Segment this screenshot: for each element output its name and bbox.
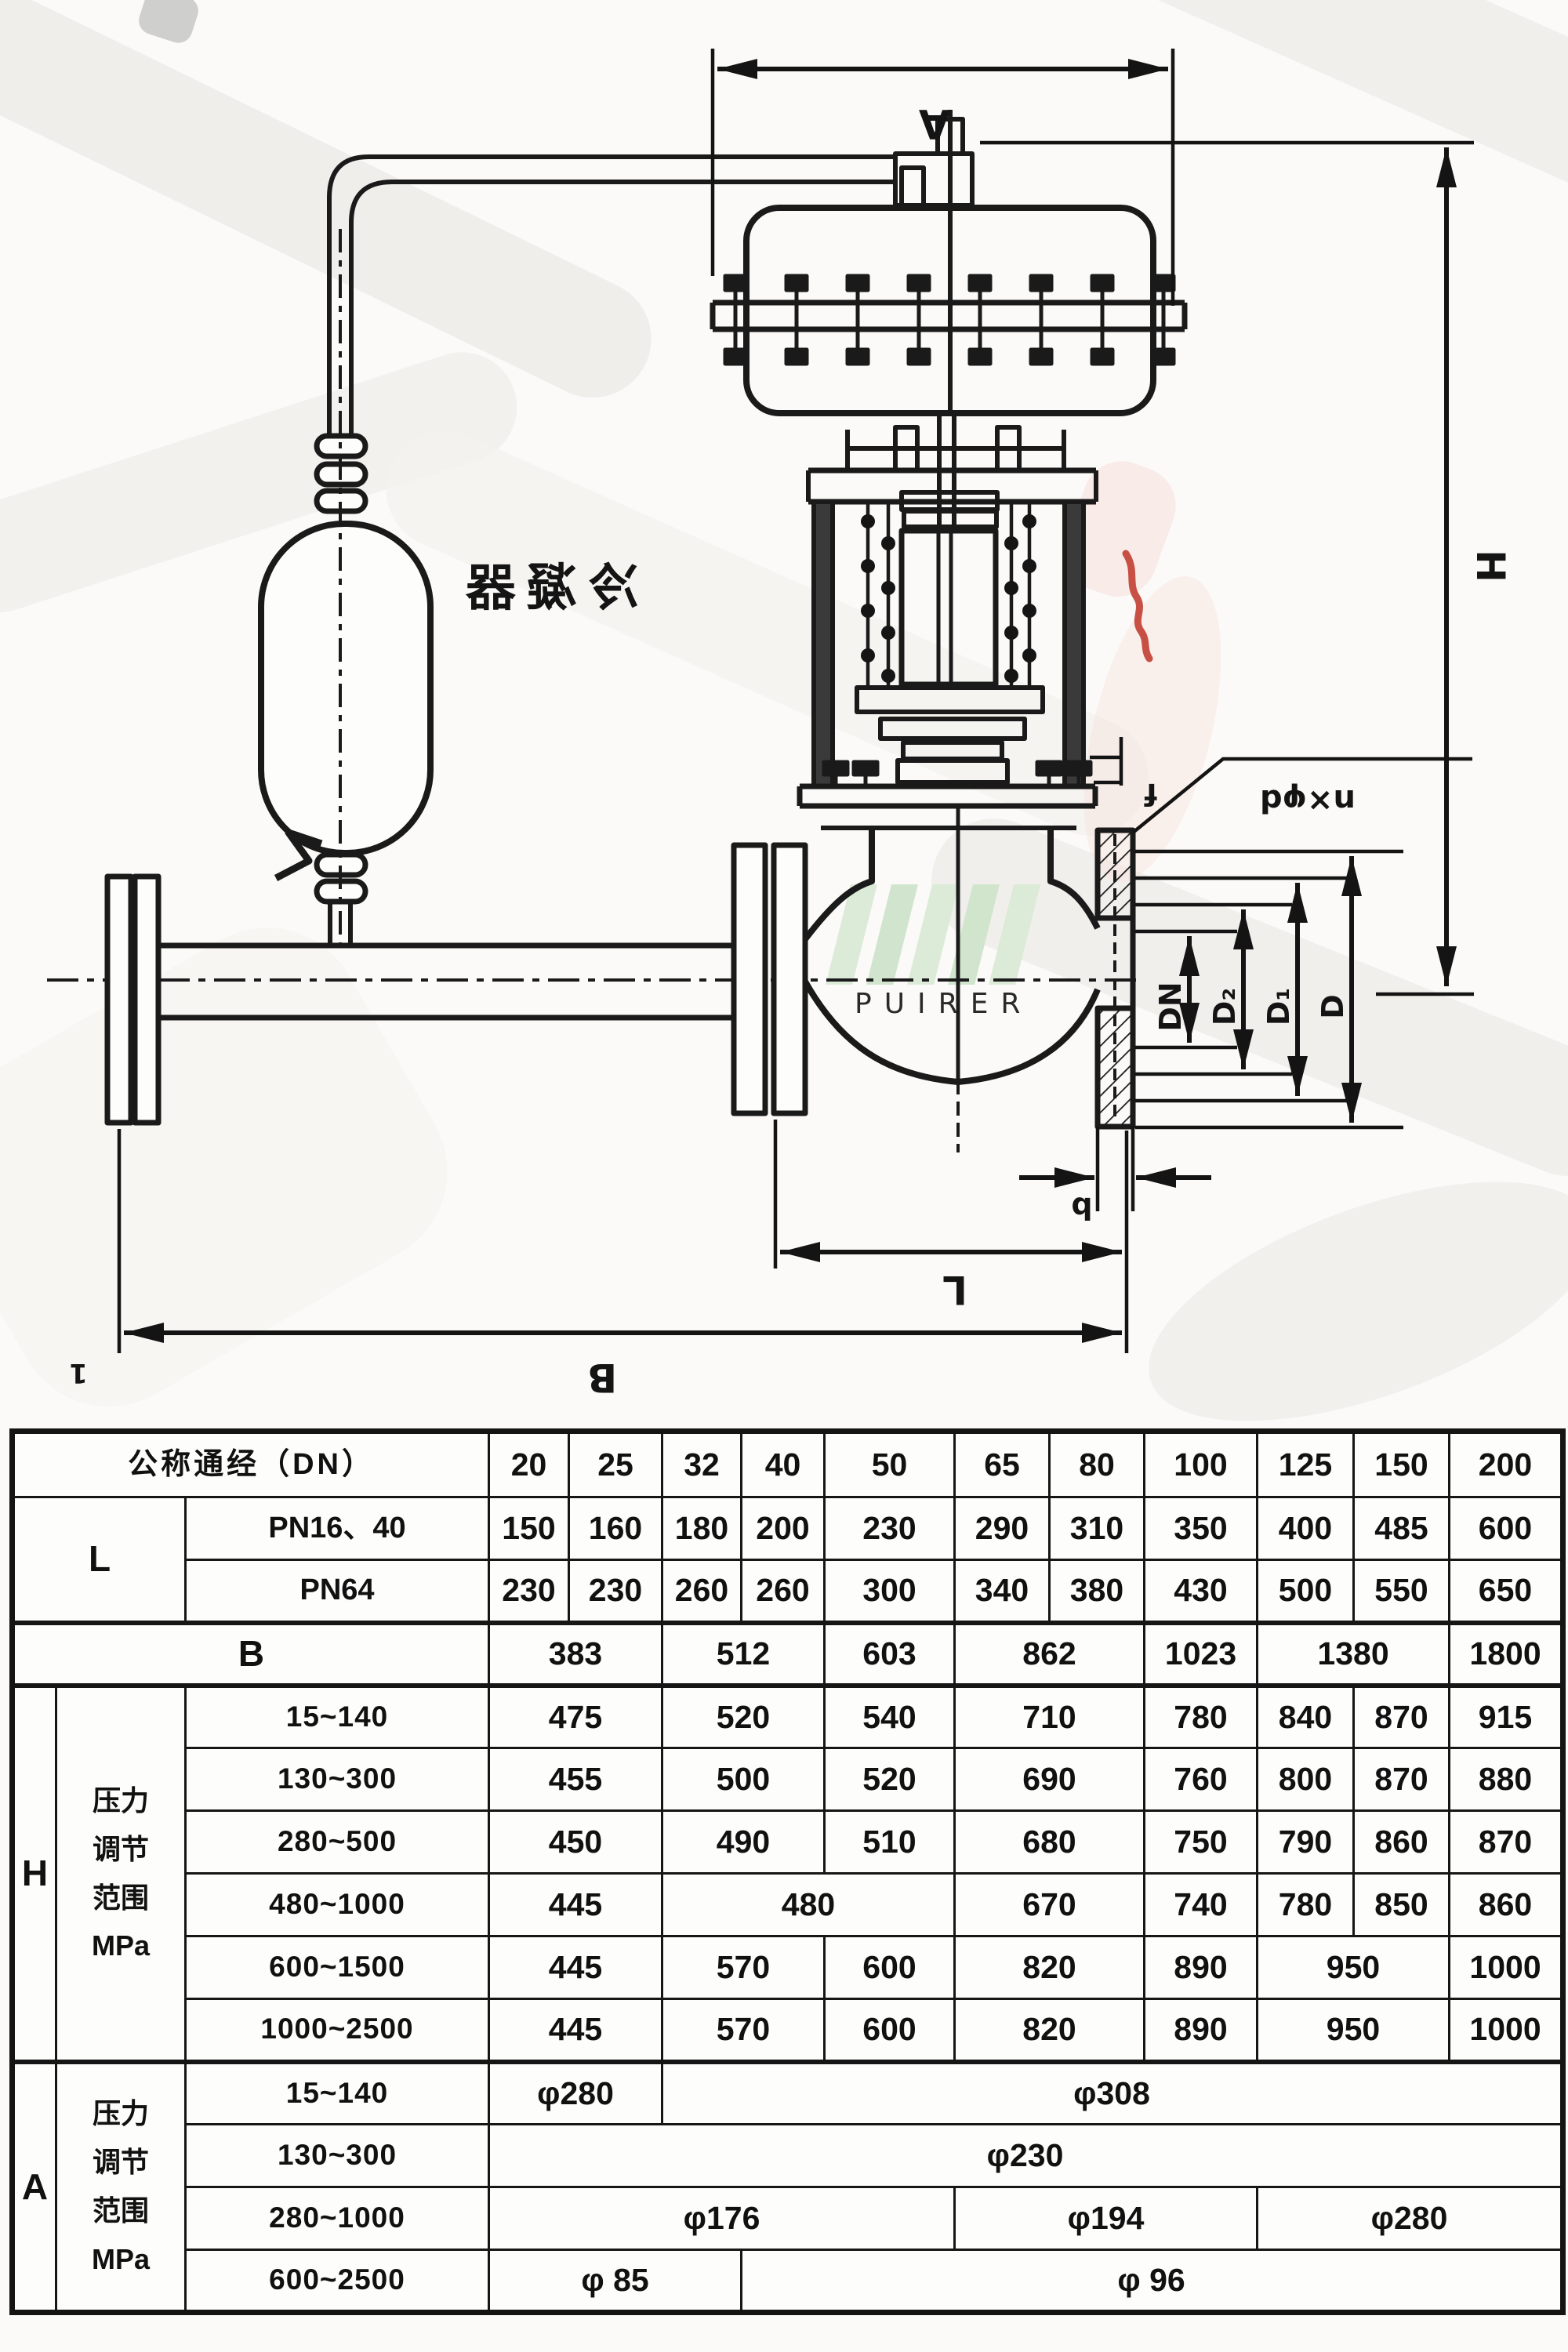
- label-D: D: [1316, 994, 1350, 1019]
- table-cell: 570: [662, 1999, 825, 2062]
- table-cell: 430: [1145, 1560, 1258, 1623]
- inlet-flange: [734, 845, 805, 1113]
- table-cell: 1380: [1258, 1623, 1450, 1686]
- table-cell: 280~500: [186, 1811, 489, 1874]
- table-cell: 480~1000: [186, 1874, 489, 1936]
- table-row: PN64230230260260300340380430500550650: [13, 1560, 1563, 1623]
- table-cell: 600: [825, 1936, 955, 1999]
- table-cell: 445: [489, 1874, 662, 1936]
- table-cell: 950: [1258, 1936, 1450, 1999]
- table-cell: 130~300: [186, 2125, 489, 2187]
- table-cell: 15~140: [186, 2062, 489, 2125]
- table-cell: 50: [825, 1432, 955, 1497]
- table-cell: 1000: [1450, 1999, 1563, 2062]
- table-cell: 862: [955, 1623, 1145, 1686]
- table-cell: 600: [825, 1999, 955, 2062]
- table-cell: 790: [1258, 1811, 1354, 1874]
- table-row: 1000~25004455706008208909501000: [13, 1999, 1563, 2062]
- table-cell: A: [13, 2062, 56, 2313]
- table-cell: 680: [955, 1811, 1145, 1874]
- table-cell: 310: [1050, 1497, 1145, 1560]
- table-cell: 260: [742, 1560, 825, 1623]
- table-cell: φ230: [489, 2125, 1563, 2187]
- table-cell: 200: [1450, 1432, 1563, 1497]
- table-cell: 25: [569, 1432, 662, 1497]
- dimension-table: 公称通经（DN）20253240506580100125150200LPN16、…: [9, 1428, 1560, 2313]
- dimension-table-body: 公称通经（DN）20253240506580100125150200LPN16、…: [13, 1432, 1563, 2313]
- table-cell: 150: [489, 1497, 569, 1560]
- table-row: 130~300455500520690760800870880: [13, 1748, 1563, 1811]
- table-cell: φ176: [489, 2187, 955, 2250]
- table-cell: 480: [662, 1874, 955, 1936]
- table-cell: φ280: [489, 2062, 662, 2125]
- label-DN: DN: [1153, 982, 1188, 1031]
- table-cell: φ 85: [489, 2250, 742, 2313]
- table-cell: PN64: [186, 1560, 489, 1623]
- label-L: L: [942, 1267, 967, 1312]
- table-cell: H: [13, 1686, 56, 2062]
- table-cell: 600: [1450, 1497, 1563, 1560]
- table-cell: 890: [1145, 1936, 1258, 1999]
- table-cell: 512: [662, 1623, 825, 1686]
- table-cell: φ308: [662, 2062, 1563, 2125]
- table-row: H压力 调节 范围 MPa15~140475520540710780840870…: [13, 1686, 1563, 1748]
- table-cell: 780: [1145, 1686, 1258, 1748]
- table-cell: 40: [742, 1432, 825, 1497]
- table-cell: 890: [1145, 1999, 1258, 2062]
- table-cell: 280~1000: [186, 2187, 489, 2250]
- label-H: H: [1468, 550, 1513, 583]
- table-cell: 1000: [1450, 1936, 1563, 1999]
- table-row: 280~500450490510680750790860870: [13, 1811, 1563, 1874]
- table-cell: 485: [1354, 1497, 1450, 1560]
- table-cell: 230: [489, 1560, 569, 1623]
- table-cell: 180: [662, 1497, 742, 1560]
- table-cell: 200: [742, 1497, 825, 1560]
- label-part-note: 1: [69, 1357, 88, 1388]
- label-nxphid: n×φd: [1260, 782, 1356, 818]
- table-cell: PN16、40: [186, 1497, 489, 1560]
- table-row: 480~1000445480670740780850860: [13, 1874, 1563, 1936]
- table-cell: 880: [1450, 1748, 1563, 1811]
- table-cell: 870: [1354, 1686, 1450, 1748]
- table-cell: 65: [955, 1432, 1050, 1497]
- table-cell: 510: [825, 1811, 955, 1874]
- table-cell: 500: [1258, 1560, 1354, 1623]
- table-cell: 340: [955, 1560, 1050, 1623]
- table-cell: φ280: [1258, 2187, 1563, 2250]
- dimension-table-grid: 公称通经（DN）20253240506580100125150200LPN16、…: [9, 1428, 1566, 2315]
- table-cell: 445: [489, 1936, 662, 1999]
- table-cell: 800: [1258, 1748, 1354, 1811]
- table-cell: 520: [662, 1686, 825, 1748]
- table-cell: 32: [662, 1432, 742, 1497]
- table-row: LPN16、4015016018020023029031035040048560…: [13, 1497, 1563, 1560]
- table-row: A压力 调节 范围 MPa15~140φ280φ308: [13, 2062, 1563, 2125]
- table-cell: 130~300: [186, 1748, 489, 1811]
- table-cell: 600~1500: [186, 1936, 489, 1999]
- table-cell: 860: [1354, 1811, 1450, 1874]
- table-cell: 压力 调节 范围 MPa: [56, 1686, 186, 2062]
- table-cell: 870: [1450, 1811, 1563, 1874]
- table-cell: 600~2500: [186, 2250, 489, 2313]
- table-cell: 710: [955, 1686, 1145, 1748]
- table-cell: 490: [662, 1811, 825, 1874]
- valve-assembly-drawing: PUIRER: [0, 0, 1568, 1428]
- table-cell: 1800: [1450, 1623, 1563, 1686]
- table-cell: 230: [569, 1560, 662, 1623]
- label-f: f: [1144, 777, 1157, 811]
- table-cell: 100: [1145, 1432, 1258, 1497]
- table-cell: 160: [569, 1497, 662, 1560]
- table-cell: 690: [955, 1748, 1145, 1811]
- table-cell: 500: [662, 1748, 825, 1811]
- table-cell: 15~140: [186, 1686, 489, 1748]
- table-cell: 80: [1050, 1432, 1145, 1497]
- table-cell: 670: [955, 1874, 1145, 1936]
- table-cell: 压力 调节 范围 MPa: [56, 2062, 186, 2313]
- table-cell: 260: [662, 1560, 742, 1623]
- condenser-valve-handle: [276, 833, 321, 878]
- table-cell: 915: [1450, 1686, 1563, 1748]
- table-cell: 300: [825, 1560, 955, 1623]
- label-D1: D₁: [1261, 988, 1296, 1025]
- watermark-text: PUIRER: [855, 988, 1033, 1020]
- table-cell: 760: [1145, 1748, 1258, 1811]
- table-cell: 820: [955, 1999, 1145, 2062]
- table-cell: 383: [489, 1623, 662, 1686]
- table-cell: 540: [825, 1686, 955, 1748]
- table-cell: 290: [955, 1497, 1050, 1560]
- table-cell: 230: [825, 1497, 955, 1560]
- table-row: 130~300φ230: [13, 2125, 1563, 2187]
- table-cell: 570: [662, 1936, 825, 1999]
- table-row: B383512603862102313801800: [13, 1623, 1563, 1686]
- background-photo-ghost: [0, 0, 1568, 1428]
- table-cell: φ 96: [742, 2250, 1563, 2313]
- table-cell: 450: [489, 1811, 662, 1874]
- table-cell: 1023: [1145, 1623, 1258, 1686]
- table-cell: 公称通经（DN）: [13, 1432, 489, 1497]
- table-row: 600~2500φ 85φ 96: [13, 2250, 1563, 2313]
- condenser-label: 冷凝器: [455, 560, 638, 618]
- table-cell: 445: [489, 1999, 662, 2062]
- table-row: 600~15004455706008208909501000: [13, 1936, 1563, 1999]
- table-cell: φ194: [955, 2187, 1258, 2250]
- table-cell: 650: [1450, 1560, 1563, 1623]
- label-D2: D₂: [1207, 988, 1242, 1025]
- table-cell: 750: [1145, 1811, 1258, 1874]
- table-cell: 380: [1050, 1560, 1145, 1623]
- table-cell: 550: [1354, 1560, 1450, 1623]
- table-cell: L: [13, 1497, 186, 1623]
- table-cell: 740: [1145, 1874, 1258, 1936]
- table-cell: B: [13, 1623, 489, 1686]
- table-cell: 350: [1145, 1497, 1258, 1560]
- table-cell: 840: [1258, 1686, 1354, 1748]
- table-cell: 820: [955, 1936, 1145, 1999]
- table-cell: 950: [1258, 1999, 1450, 2062]
- table-cell: 1000~2500: [186, 1999, 489, 2062]
- page-root: { "diagram": { "condenser_label": "冷凝器",…: [0, 0, 1568, 2352]
- table-cell: 603: [825, 1623, 955, 1686]
- table-cell: 870: [1354, 1748, 1450, 1811]
- table-cell: 520: [825, 1748, 955, 1811]
- table-cell: 780: [1258, 1874, 1354, 1936]
- table-row: 280~1000φ176φ194φ280: [13, 2187, 1563, 2250]
- table-cell: 125: [1258, 1432, 1354, 1497]
- label-b: b: [1071, 1191, 1092, 1225]
- table-cell: 150: [1354, 1432, 1450, 1497]
- table-cell: 850: [1354, 1874, 1450, 1936]
- label-B: B: [587, 1355, 617, 1400]
- table-cell: 455: [489, 1748, 662, 1811]
- label-A: A: [919, 100, 950, 147]
- table-row: 公称通经（DN）20253240506580100125150200: [13, 1432, 1563, 1497]
- table-cell: 475: [489, 1686, 662, 1748]
- table-cell: 400: [1258, 1497, 1354, 1560]
- actuator-top-fitting: [895, 110, 972, 416]
- table-cell: 860: [1450, 1874, 1563, 1936]
- table-cell: 20: [489, 1432, 569, 1497]
